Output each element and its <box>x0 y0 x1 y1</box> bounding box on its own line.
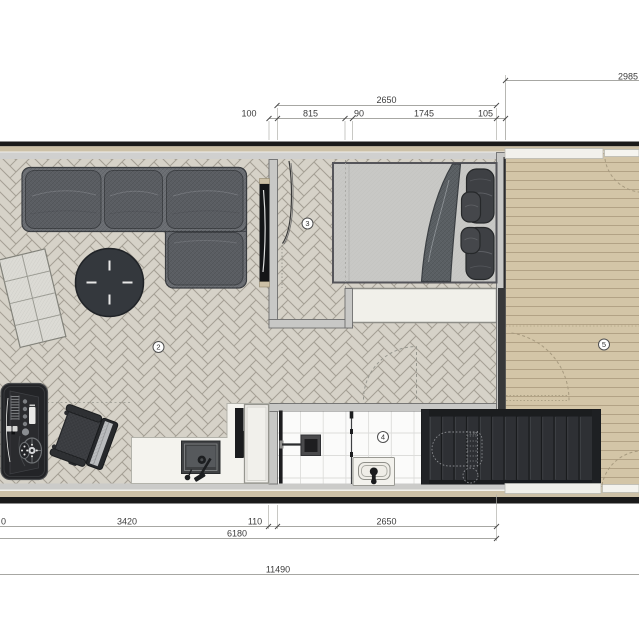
svg-text:2985: 2985 <box>618 72 638 82</box>
svg-text:6180: 6180 <box>227 529 247 539</box>
svg-text:110: 110 <box>248 517 262 527</box>
svg-text:2650: 2650 <box>376 517 396 527</box>
svg-text:0: 0 <box>1 517 6 527</box>
svg-text:1745: 1745 <box>414 109 434 119</box>
svg-text:2: 2 <box>156 343 160 352</box>
svg-text:105: 105 <box>478 109 493 119</box>
svg-text:100: 100 <box>241 109 256 119</box>
svg-text:90: 90 <box>354 109 364 119</box>
svg-text:4: 4 <box>381 433 385 442</box>
svg-text:11490: 11490 <box>266 565 290 575</box>
svg-text:815: 815 <box>303 109 318 119</box>
svg-text:1.10: 1.10 <box>469 431 478 436</box>
svg-text:5: 5 <box>602 340 606 349</box>
svg-text:2650: 2650 <box>376 95 396 105</box>
svg-text:3420: 3420 <box>117 517 137 527</box>
svg-text:3: 3 <box>305 219 309 228</box>
